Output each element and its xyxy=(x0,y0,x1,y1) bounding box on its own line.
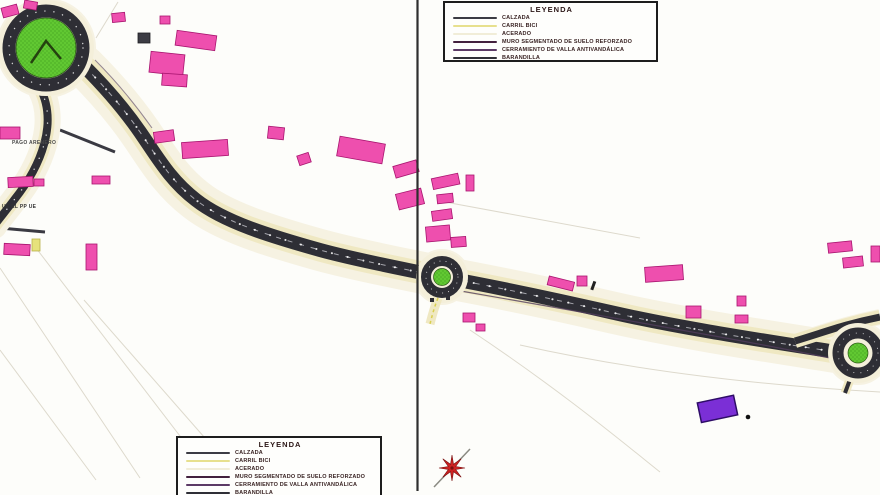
legend-item-label: ACERADO xyxy=(502,31,531,37)
legend-item-label: CALZADA xyxy=(235,450,263,456)
legend-item-label: CERRAMIENTO DE VALLA ANTIVANDÁLICA xyxy=(235,482,357,488)
legend-box-top: LEYENDA CALZADA CARRIL BICI ACERADO MURO… xyxy=(443,1,658,62)
compass-rose-icon xyxy=(434,449,470,487)
building xyxy=(735,315,748,323)
building xyxy=(871,246,880,262)
building xyxy=(337,136,386,164)
building xyxy=(686,306,701,318)
legend-item: CERRAMIENTO DE VALLA ANTIVANDÁLICA xyxy=(186,481,374,489)
building xyxy=(92,176,110,184)
building xyxy=(34,179,44,186)
legend-color-swatch xyxy=(186,492,230,495)
legend-color-swatch xyxy=(453,17,497,20)
roundabout-mid xyxy=(416,251,468,324)
legend-item: CALZADA xyxy=(453,14,650,22)
site-plan-map xyxy=(0,0,880,495)
legend-color-swatch xyxy=(186,452,230,455)
legend-color-swatch xyxy=(186,484,230,487)
building xyxy=(86,244,97,270)
building xyxy=(0,127,20,139)
legend-item: BARANDILLA xyxy=(186,489,374,495)
map-label-pago: PAGO ARENERO xyxy=(12,140,56,146)
legend-color-swatch xyxy=(186,476,230,479)
legend-item: MURO SEGMENTADO DE SUELO REFORZADO xyxy=(186,473,374,481)
map-dot xyxy=(746,415,751,420)
building xyxy=(8,176,33,187)
building xyxy=(32,239,40,251)
legend-item: CARRIL BICI xyxy=(453,22,650,30)
legend-title: LEYENDA xyxy=(186,440,374,449)
site-plan-canvas: LEYENDA CALZADA CARRIL BICI ACERADO MURO… xyxy=(0,0,880,495)
legend-color-swatch xyxy=(453,57,497,60)
building xyxy=(267,126,284,140)
legend-title: LEYENDA xyxy=(453,5,650,14)
legend-color-swatch xyxy=(186,460,230,463)
building xyxy=(395,188,424,210)
building xyxy=(23,0,37,10)
building xyxy=(181,139,228,158)
legend-item-label: CARRIL BICI xyxy=(502,23,537,29)
building xyxy=(431,209,452,222)
building xyxy=(138,33,150,43)
legend-color-swatch xyxy=(453,49,497,52)
building xyxy=(149,51,185,75)
building xyxy=(112,12,126,22)
building xyxy=(431,173,460,189)
building xyxy=(476,324,485,331)
building xyxy=(463,313,475,322)
legend-color-swatch xyxy=(453,25,497,28)
legend-item: CARRIL BICI xyxy=(186,457,374,465)
building xyxy=(828,241,853,253)
legend-item: ACERADO xyxy=(453,30,650,38)
legend-item: CERRAMIENTO DE VALLA ANTIVANDÁLICA xyxy=(453,46,650,54)
building xyxy=(160,16,170,24)
legend-item: ACERADO xyxy=(186,465,374,473)
building xyxy=(153,130,174,144)
main-road xyxy=(84,66,836,352)
building xyxy=(162,73,188,87)
building xyxy=(451,236,467,247)
building xyxy=(843,256,864,268)
building xyxy=(737,296,746,306)
legend-item-label: MURO SEGMENTADO DE SUELO REFORZADO xyxy=(502,39,632,45)
legend-item: MURO SEGMENTADO DE SUELO REFORZADO xyxy=(453,38,650,46)
building xyxy=(4,243,31,255)
building xyxy=(393,160,419,178)
building xyxy=(466,175,474,191)
building xyxy=(577,276,587,286)
legend-item: CALZADA xyxy=(186,449,374,457)
legend-item-label: CARRIL BICI xyxy=(235,458,270,464)
building xyxy=(297,152,312,165)
building xyxy=(437,193,454,204)
legend-item-label: ACERADO xyxy=(235,466,264,472)
legend-item-label: MURO SEGMENTADO DE SUELO REFORZADO xyxy=(235,474,365,480)
legend-color-swatch xyxy=(186,468,230,471)
building xyxy=(645,265,684,283)
legend-item-label: BARANDILLA xyxy=(502,55,540,61)
building xyxy=(175,30,217,50)
legend-item-label: CERRAMIENTO DE VALLA ANTIVANDÁLICA xyxy=(502,47,624,53)
legend-item-label: CALZADA xyxy=(502,15,530,21)
legend-color-swatch xyxy=(453,41,497,44)
legend-color-swatch xyxy=(453,33,497,36)
legend-box-bottom: LEYENDA CALZADA CARRIL BICI ACERADO MURO… xyxy=(176,436,382,495)
map-label-pp: UE EL PP UE xyxy=(2,204,36,210)
legend-item: BARANDILLA xyxy=(453,54,650,62)
building xyxy=(425,225,450,242)
legend-item-label: BARANDILLA xyxy=(235,490,273,495)
